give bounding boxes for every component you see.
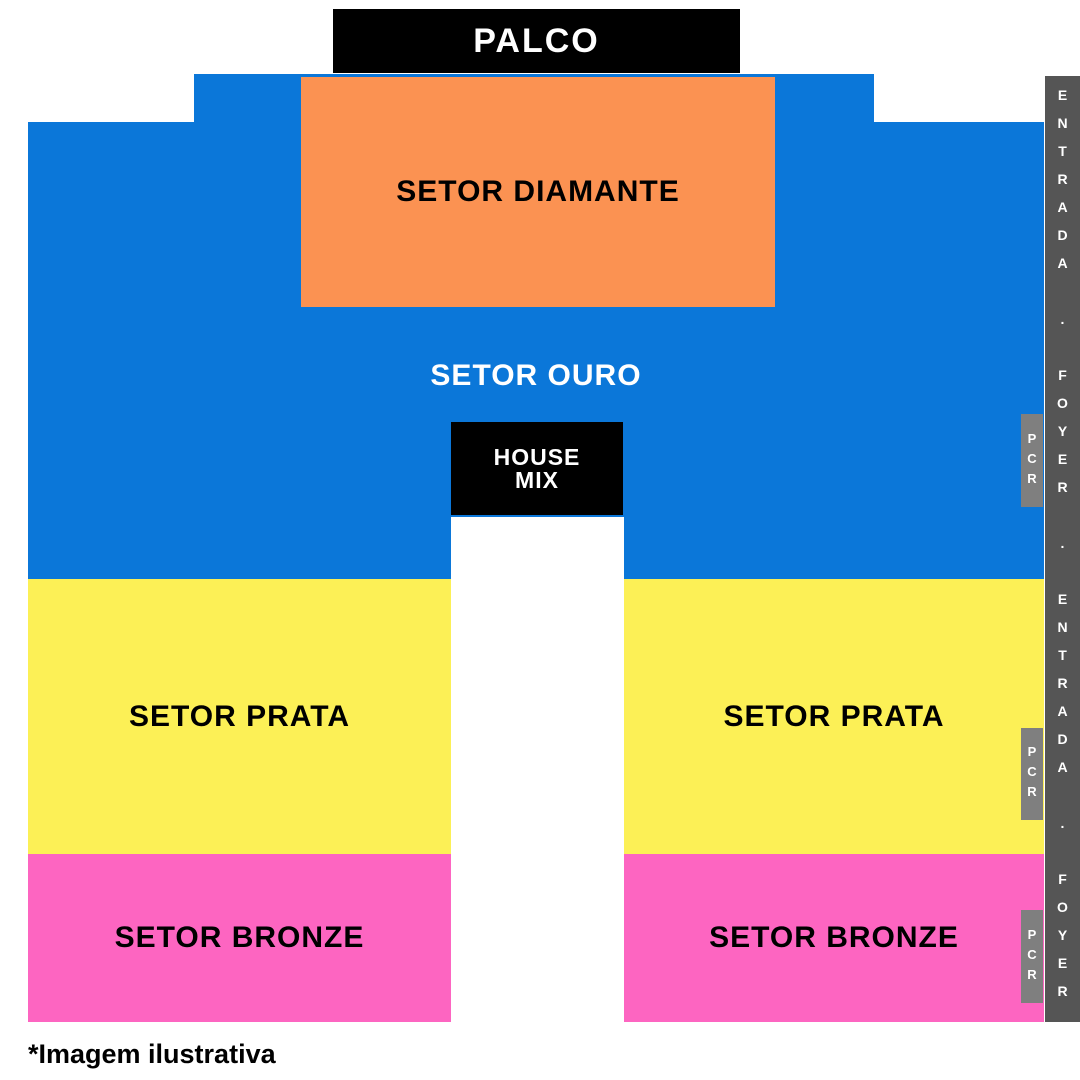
house-mix-label: HOUSE MIX [494, 446, 581, 492]
pcr-box-3: PCR [1021, 910, 1043, 1003]
sector-prata-right-label: SETOR PRATA [723, 700, 944, 734]
sector-prata-left[interactable]: SETOR PRATA [28, 579, 451, 854]
pcr-box-1-label: PCR [1025, 431, 1040, 491]
pcr-box-1: PCR [1021, 414, 1043, 507]
sector-diamante-label: SETOR DIAMANTE [396, 175, 679, 209]
sector-bronze-right-label: SETOR BRONZE [709, 921, 959, 955]
pcr-box-2-label: PCR [1025, 744, 1040, 804]
sector-bronze-left-label: SETOR BRONZE [115, 921, 365, 955]
house-mix-booth: HOUSE MIX [451, 422, 623, 515]
stage-label: PALCO [473, 22, 599, 61]
entrance-foyer-strip: ENTRADA . FOYER . ENTRADA . FOYER [1045, 76, 1080, 1022]
pcr-box-2: PCR [1021, 728, 1043, 820]
stage-palco: PALCO [333, 9, 740, 73]
sector-prata-left-label: SETOR PRATA [129, 700, 350, 734]
sector-ouro-label: SETOR OURO [430, 359, 641, 393]
center-aisle [451, 517, 624, 579]
sector-diamante[interactable]: SETOR DIAMANTE [301, 77, 775, 307]
sector-prata-right[interactable]: SETOR PRATA [624, 579, 1044, 854]
entrance-foyer-text: ENTRADA . FOYER . ENTRADA . FOYER [1055, 87, 1071, 1011]
illustrative-note: *Imagem ilustrativa [28, 1039, 276, 1070]
seat-map: PALCO SETOR DIAMANTE SETOR OURO HOUSE MI… [0, 0, 1080, 1080]
pcr-box-3-label: PCR [1025, 927, 1040, 987]
sector-bronze-right[interactable]: SETOR BRONZE [624, 854, 1044, 1022]
sector-bronze-left[interactable]: SETOR BRONZE [28, 854, 451, 1022]
sector-ouro-label-wrap: SETOR OURO [28, 356, 1044, 396]
